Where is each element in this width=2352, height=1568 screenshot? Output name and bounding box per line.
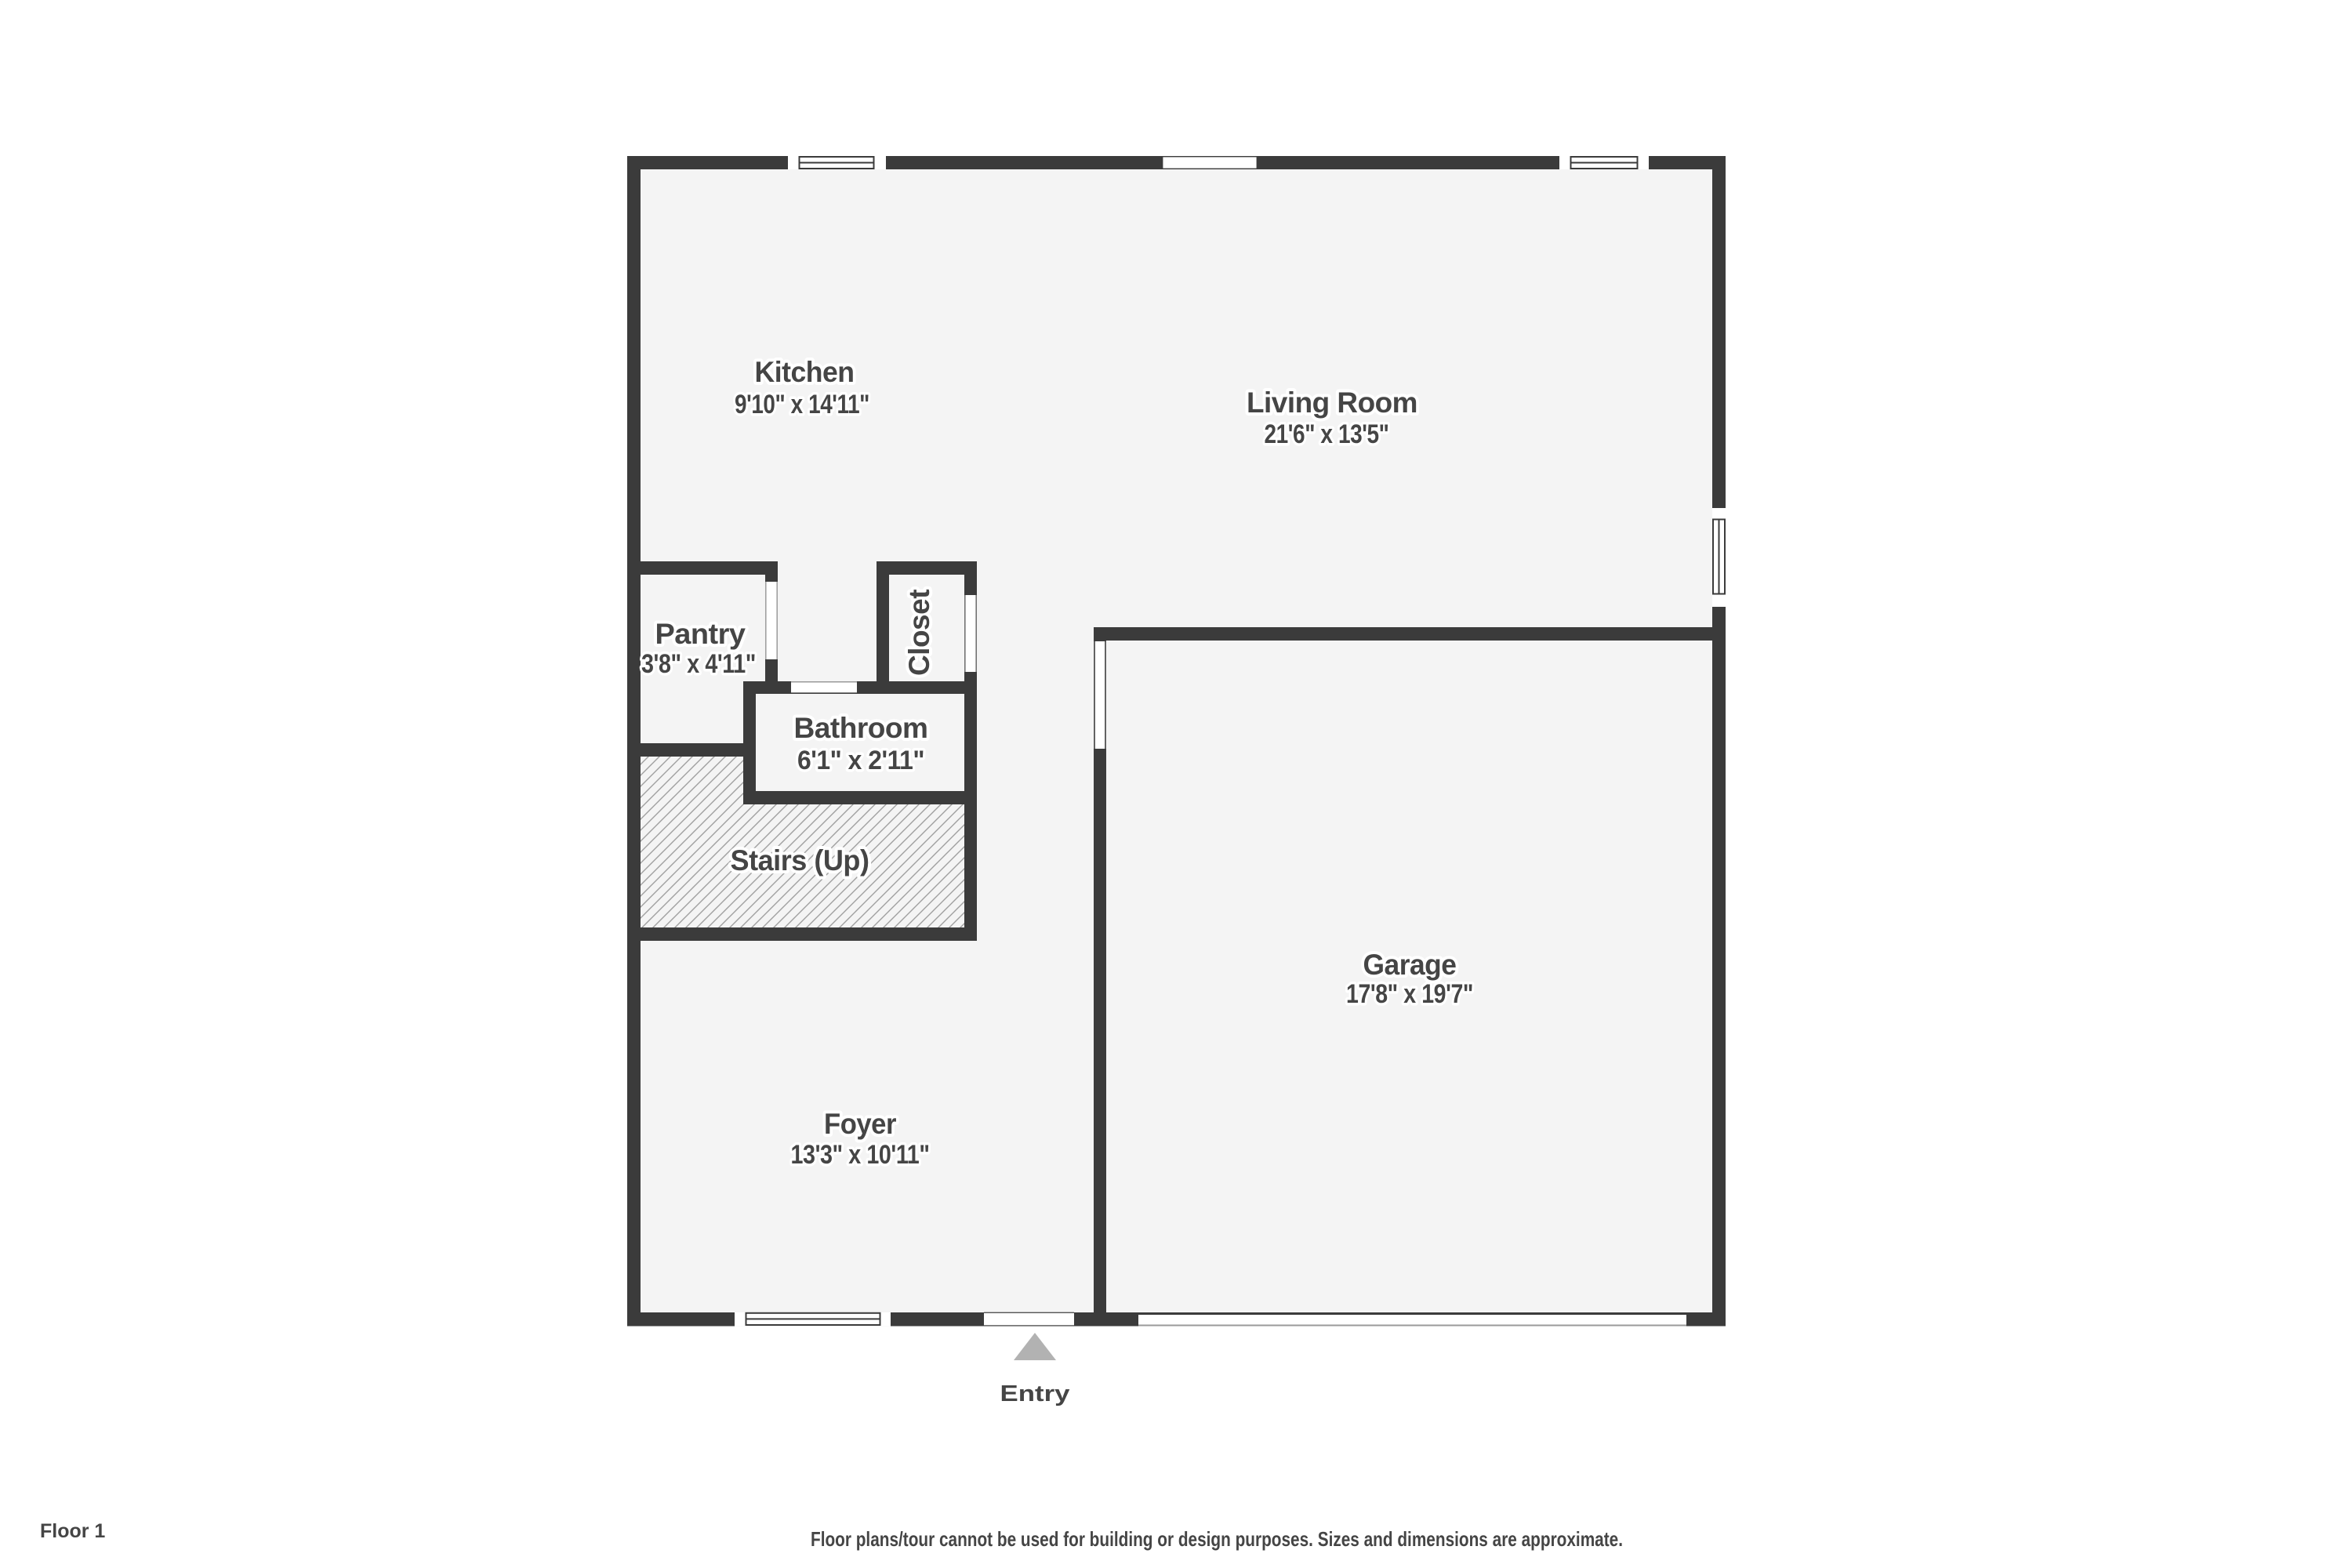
svg-text:21'6" x 13'5": 21'6" x 13'5"	[1265, 419, 1389, 449]
svg-text:Garage: Garage	[1363, 949, 1457, 981]
svg-text:13'3" x 10'11": 13'3" x 10'11"	[791, 1140, 930, 1170]
svg-text:Floor 1: Floor 1	[40, 1520, 105, 1542]
svg-text:Living Room: Living Room	[1247, 387, 1417, 419]
svg-text:Foyer: Foyer	[824, 1108, 896, 1140]
svg-text:Bathroom: Bathroom	[794, 712, 928, 744]
svg-text:Stairs (Up): Stairs (Up)	[731, 844, 869, 877]
svg-text:Entry: Entry	[1000, 1381, 1070, 1406]
svg-text:Closet: Closet	[903, 590, 935, 676]
svg-text:3'8" x 4'11": 3'8" x 4'11"	[641, 649, 756, 679]
svg-text:9'10" x 14'11": 9'10" x 14'11"	[735, 390, 869, 419]
svg-text:17'8" x 19'7": 17'8" x 19'7"	[1346, 979, 1473, 1009]
svg-text:6'1" x 2'11": 6'1" x 2'11"	[797, 746, 924, 775]
svg-text:Floor plans/tour cannot be use: Floor plans/tour cannot be used for buil…	[811, 1527, 1623, 1551]
svg-text:Kitchen: Kitchen	[755, 356, 855, 388]
svg-text:Pantry: Pantry	[655, 618, 746, 650]
